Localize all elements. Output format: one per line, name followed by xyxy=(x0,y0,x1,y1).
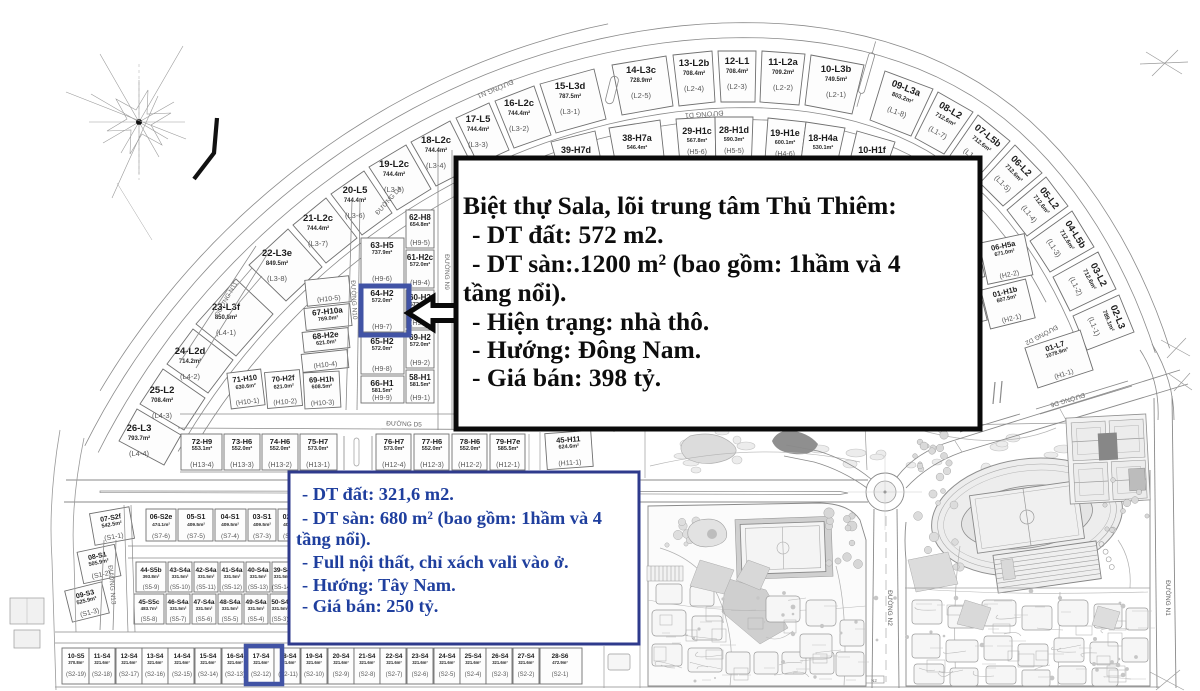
svg-text:331.5m²: 331.5m² xyxy=(198,574,215,579)
svg-text:321.6m²: 321.6m² xyxy=(200,660,216,665)
svg-text:48-S4a: 48-S4a xyxy=(220,599,241,606)
svg-text:(S2-3): (S2-3) xyxy=(492,672,509,678)
svg-text:(S2-9): (S2-9) xyxy=(333,672,350,678)
svg-text:321.6m²: 321.6m² xyxy=(121,660,137,665)
svg-text:(H13-3): (H13-3) xyxy=(230,462,254,469)
svg-text:(L4-4): (L4-4) xyxy=(129,449,150,458)
svg-text:(S2-10): (S2-10) xyxy=(304,672,324,678)
svg-text:744.4m²: 744.4m² xyxy=(344,197,366,204)
svg-text:530.1m²: 530.1m² xyxy=(813,144,834,151)
svg-text:06-S2e: 06-S2e xyxy=(150,514,173,521)
svg-text:(S2-15): (S2-15) xyxy=(172,672,192,678)
svg-text:58-H1: 58-H1 xyxy=(409,373,431,382)
svg-text:849.5m²: 849.5m² xyxy=(266,260,288,267)
svg-text:40-S4a: 40-S4a xyxy=(248,567,269,574)
svg-text:- DT đất: 572 m2.: - DT đất: 572 m2. xyxy=(472,220,664,249)
svg-text:24-L2d: 24-L2d xyxy=(175,346,206,357)
svg-text:19-H1e: 19-H1e xyxy=(770,128,800,138)
svg-text:744.4m²: 744.4m² xyxy=(425,147,447,154)
svg-text:12-S4: 12-S4 xyxy=(121,653,138,660)
svg-text:708.4m²: 708.4m² xyxy=(151,397,173,404)
svg-text:(S5-9): (S5-9) xyxy=(143,585,160,591)
svg-text:744.4m²: 744.4m² xyxy=(307,225,329,232)
svg-text:79-H7e: 79-H7e xyxy=(496,437,521,446)
svg-text:73-H6: 73-H6 xyxy=(232,437,252,446)
svg-text:393.8m²: 393.8m² xyxy=(143,574,160,579)
svg-text:581.5m²: 581.5m² xyxy=(410,381,431,388)
svg-text:552.0m²: 552.0m² xyxy=(460,445,481,452)
svg-text:10-L3b: 10-L3b xyxy=(821,64,852,75)
svg-text:- DT sàn:.1200 m² (bao gồm: 1h: - DT sàn:.1200 m² (bao gồm: 1hầm và 4 xyxy=(472,249,901,278)
svg-text:39-H7d: 39-H7d xyxy=(561,145,591,155)
svg-text:(S5-12): (S5-12) xyxy=(222,585,242,591)
svg-text:567.8m²: 567.8m² xyxy=(687,137,708,144)
svg-text:50-S4: 50-S4 xyxy=(271,599,289,606)
svg-text:- Hiện trạng: nhà thô.: - Hiện trạng: nhà thô. xyxy=(472,307,709,336)
svg-text:17-L5: 17-L5 xyxy=(466,114,492,125)
svg-text:(H12-2): (H12-2) xyxy=(458,462,482,469)
svg-text:708.4m²: 708.4m² xyxy=(726,68,748,75)
svg-text:573.0m²: 573.0m² xyxy=(384,445,405,452)
svg-text:(S5-3): (S5-3) xyxy=(272,617,289,623)
svg-text:(H13-4): (H13-4) xyxy=(190,462,214,469)
svg-text:585.5m²: 585.5m² xyxy=(498,445,519,452)
svg-text:(S2-4): (S2-4) xyxy=(465,672,482,678)
svg-text:(H13-2): (H13-2) xyxy=(268,462,292,469)
svg-text:11-L2a: 11-L2a xyxy=(768,57,798,68)
svg-text:03-S1: 03-S1 xyxy=(253,514,272,521)
svg-text:321.6m²: 321.6m² xyxy=(386,660,402,665)
svg-text:(H9-5): (H9-5) xyxy=(410,240,430,247)
svg-text:(H5-6): (H5-6) xyxy=(687,149,707,156)
svg-text:(S5-5): (S5-5) xyxy=(222,617,239,623)
svg-text:ĐƯỜNG N9: ĐƯỜNG N9 xyxy=(443,254,452,290)
svg-text:04-S1: 04-S1 xyxy=(221,514,240,521)
svg-text:45-S5c: 45-S5c xyxy=(139,599,160,606)
svg-text:331.5m²: 331.5m² xyxy=(172,574,189,579)
svg-text:(L2-4): (L2-4) xyxy=(684,84,705,93)
svg-text:10-S5: 10-S5 xyxy=(68,653,85,660)
svg-text:tầng nổi).: tầng nổi). xyxy=(463,278,566,307)
svg-text:64-H2: 64-H2 xyxy=(370,288,393,298)
svg-text:(S2-7): (S2-7) xyxy=(386,672,403,678)
svg-text:(H9-2): (H9-2) xyxy=(410,360,430,367)
svg-text:321.6m²: 321.6m² xyxy=(465,660,481,665)
svg-text:(L4-2): (L4-2) xyxy=(180,372,201,381)
svg-text:552.0m²: 552.0m² xyxy=(270,445,291,452)
svg-text:62-H8: 62-H8 xyxy=(409,213,431,222)
svg-text:572.0m²: 572.0m² xyxy=(410,261,431,268)
svg-text:321.6m²: 321.6m² xyxy=(492,660,508,665)
svg-text:409.5m²: 409.5m² xyxy=(187,522,205,528)
svg-text:(L3-3): (L3-3) xyxy=(468,140,489,149)
svg-text:(H9-9): (H9-9) xyxy=(372,395,392,402)
svg-text:25-S4: 25-S4 xyxy=(465,653,482,660)
svg-text:(S7-4): (S7-4) xyxy=(221,533,239,540)
svg-text:321.6m²: 321.6m² xyxy=(227,660,243,665)
svg-text:77-H6: 77-H6 xyxy=(422,437,442,446)
svg-text:15-S4: 15-S4 xyxy=(200,653,217,660)
svg-text:(S2-12): (S2-12) xyxy=(251,672,271,678)
svg-text:472.9m²: 472.9m² xyxy=(552,660,568,665)
svg-text:(S5-7): (S5-7) xyxy=(170,617,187,623)
svg-text:(S2-13): (S2-13) xyxy=(225,672,245,678)
svg-text:(S2-16): (S2-16) xyxy=(145,672,165,678)
svg-text:22-S4: 22-S4 xyxy=(386,653,403,660)
svg-text:ĐƯỜNG N1: ĐƯỜNG N1 xyxy=(1164,580,1173,616)
svg-text:(S2-6): (S2-6) xyxy=(412,672,429,678)
svg-text:(L2-1): (L2-1) xyxy=(826,90,847,99)
svg-text:(L3-8): (L3-8) xyxy=(267,274,288,283)
svg-text:590.3m²: 590.3m² xyxy=(724,136,745,143)
svg-text:709.2m²: 709.2m² xyxy=(772,69,794,76)
svg-text:(H9-6): (H9-6) xyxy=(372,276,392,283)
svg-text:744.4m²: 744.4m² xyxy=(383,171,405,178)
svg-text:737.9m²: 737.9m² xyxy=(372,249,393,256)
svg-text:- Giá bán: 250 tỷ.: - Giá bán: 250 tỷ. xyxy=(302,596,438,616)
svg-text:608.5m²: 608.5m² xyxy=(311,382,332,390)
svg-text:20-L5: 20-L5 xyxy=(343,185,369,196)
svg-text:13-S4: 13-S4 xyxy=(147,653,164,660)
svg-text:(S5-13): (S5-13) xyxy=(248,585,268,591)
svg-text:321.6m²: 321.6m² xyxy=(359,660,375,665)
svg-text:21-S4: 21-S4 xyxy=(359,653,376,660)
svg-text:22-L3e: 22-L3e xyxy=(262,248,292,259)
svg-text:572.0m²: 572.0m² xyxy=(372,345,393,352)
svg-text:573.0m²: 573.0m² xyxy=(308,445,329,452)
svg-text:49-S4a: 49-S4a xyxy=(246,599,267,606)
svg-text:787.5m²: 787.5m² xyxy=(559,93,581,100)
svg-text:744.4m²: 744.4m² xyxy=(508,110,530,117)
svg-text:(S2-18): (S2-18) xyxy=(92,672,112,678)
svg-text:793.7m²: 793.7m² xyxy=(128,435,150,442)
svg-text:75-H7: 75-H7 xyxy=(308,437,328,446)
svg-text:- Full nội thất, chỉ xách vali: - Full nội thất, chỉ xách vali vào ở. xyxy=(302,552,569,572)
svg-text:(H12-1): (H12-1) xyxy=(496,462,520,469)
svg-text:331.5m²: 331.5m² xyxy=(250,574,267,579)
svg-text:17-S4: 17-S4 xyxy=(253,653,270,660)
svg-text:74-H6: 74-H6 xyxy=(270,437,290,446)
svg-text:19-S4: 19-S4 xyxy=(306,653,323,660)
svg-text:553.1m²: 553.1m² xyxy=(192,445,213,452)
svg-text:- DT đất: 321,6 m2.: - DT đất: 321,6 m2. xyxy=(302,484,454,504)
svg-text:(H9-4): (H9-4) xyxy=(410,280,430,287)
svg-text:708.4m²: 708.4m² xyxy=(683,70,705,77)
svg-text:321.6m²: 321.6m² xyxy=(412,660,428,665)
svg-text:78-H6: 78-H6 xyxy=(460,437,480,446)
svg-text:28-S6: 28-S6 xyxy=(552,653,569,660)
svg-text:321.6m²: 321.6m² xyxy=(253,660,269,665)
svg-text:14-L3c: 14-L3c xyxy=(626,65,656,76)
svg-text:tầng nổi).: tầng nổi). xyxy=(296,529,371,550)
svg-text:63-H5: 63-H5 xyxy=(370,240,393,250)
svg-text:331.5m²: 331.5m² xyxy=(170,606,187,611)
svg-text:13-L2b: 13-L2b xyxy=(679,58,710,69)
svg-text:18-L2c: 18-L2c xyxy=(421,135,451,146)
svg-text:43-S4a: 43-S4a xyxy=(170,567,191,574)
svg-text:(S2-19): (S2-19) xyxy=(66,672,86,678)
svg-text:15-L3d: 15-L3d xyxy=(555,81,586,92)
svg-text:(H9-7): (H9-7) xyxy=(372,324,392,331)
svg-text:331.5m²: 331.5m² xyxy=(196,606,213,611)
svg-text:409.5m²: 409.5m² xyxy=(221,522,239,528)
svg-text:(S2-2): (S2-2) xyxy=(518,672,535,678)
svg-text:24-S4: 24-S4 xyxy=(439,653,456,660)
svg-text:552.0m²: 552.0m² xyxy=(422,445,443,452)
svg-text:(S7-3): (S7-3) xyxy=(253,533,271,540)
svg-text:72-H9: 72-H9 xyxy=(192,437,212,446)
svg-text:76-H7: 76-H7 xyxy=(384,437,404,446)
svg-text:61-H2c: 61-H2c xyxy=(407,253,434,262)
svg-text:(S2-14): (S2-14) xyxy=(198,672,218,678)
svg-text:321.6m²: 321.6m² xyxy=(439,660,455,665)
svg-text:321.6m²: 321.6m² xyxy=(306,660,322,665)
svg-text:- Giá bán: 398 tỷ.: - Giá bán: 398 tỷ. xyxy=(472,363,661,392)
svg-text:41-S4a: 41-S4a xyxy=(222,567,243,574)
svg-text:25-L2: 25-L2 xyxy=(150,385,175,396)
svg-text:321.6m²: 321.6m² xyxy=(94,660,110,665)
svg-text:44-S5b: 44-S5b xyxy=(140,567,161,574)
svg-text:29-H1c: 29-H1c xyxy=(682,126,712,136)
svg-text:N2: N2 xyxy=(871,678,877,683)
svg-text:(H5-5): (H5-5) xyxy=(724,148,744,155)
svg-text:321.6m²: 321.6m² xyxy=(174,660,190,665)
svg-text:(H9-8): (H9-8) xyxy=(372,366,392,373)
svg-text:(S5-4): (S5-4) xyxy=(248,617,265,623)
svg-text:46-S4a: 46-S4a xyxy=(168,599,189,606)
svg-text:18-H4a: 18-H4a xyxy=(808,133,839,143)
svg-text:Biệt thự Sala, lõi trung tâm T: Biệt thự Sala, lõi trung tâm Thủ Thiêm: xyxy=(463,191,897,220)
svg-text:483.7m²: 483.7m² xyxy=(141,606,158,611)
svg-text:10-H1f: 10-H1f xyxy=(858,145,887,155)
svg-text:(S7-5): (S7-5) xyxy=(187,533,205,540)
svg-text:572.0m²: 572.0m² xyxy=(410,341,431,348)
svg-text:- DT sàn: 680 m² (bao gồm: 1hầ: - DT sàn: 680 m² (bao gồm: 1hầm và 4 xyxy=(302,508,602,529)
svg-text:28-H1d: 28-H1d xyxy=(719,125,749,135)
svg-text:552.0m²: 552.0m² xyxy=(232,445,253,452)
svg-text:331.5m²: 331.5m² xyxy=(248,606,265,611)
svg-text:38-H7a: 38-H7a xyxy=(622,133,653,143)
svg-text:23-S4: 23-S4 xyxy=(412,653,429,660)
svg-text:(H10-3): (H10-3) xyxy=(311,399,335,407)
svg-text:331.5m²: 331.5m² xyxy=(272,606,289,611)
svg-text:(L2-2): (L2-2) xyxy=(773,83,794,92)
svg-text:(L2-5): (L2-5) xyxy=(631,91,652,100)
svg-text:(S5-11): (S5-11) xyxy=(196,585,216,591)
svg-text:624.6m²: 624.6m² xyxy=(558,442,579,450)
svg-text:(S5-8): (S5-8) xyxy=(141,617,158,623)
svg-text:(L4-1): (L4-1) xyxy=(216,328,237,337)
svg-text:370.8m²: 370.8m² xyxy=(68,660,84,665)
svg-text:(S2-8): (S2-8) xyxy=(359,672,376,678)
svg-text:- Hướng: Tây Nam.: - Hướng: Tây Nam. xyxy=(302,575,456,595)
svg-text:- Hướng: Đông Nam.: - Hướng: Đông Nam. xyxy=(472,335,701,364)
svg-text:(L4-3): (L4-3) xyxy=(152,411,173,420)
svg-text:581.5m²: 581.5m² xyxy=(372,387,393,394)
svg-text:42-S4a: 42-S4a xyxy=(196,567,217,574)
svg-text:(S2-5): (S2-5) xyxy=(439,672,456,678)
svg-text:(S2-17): (S2-17) xyxy=(119,672,139,678)
svg-text:19-L2c: 19-L2c xyxy=(379,159,409,170)
svg-text:27-S4: 27-S4 xyxy=(518,653,535,660)
svg-text:14-S4: 14-S4 xyxy=(174,653,191,660)
svg-text:321.6m²: 321.6m² xyxy=(147,660,163,665)
svg-text:600.1m²: 600.1m² xyxy=(775,139,796,146)
svg-text:12-L1: 12-L1 xyxy=(725,56,751,67)
svg-text:728.9m²: 728.9m² xyxy=(630,77,652,84)
svg-text:(S7-6): (S7-6) xyxy=(152,533,170,540)
svg-text:(S5-6): (S5-6) xyxy=(196,617,213,623)
svg-text:(L2-3): (L2-3) xyxy=(727,82,748,91)
svg-text:26-L3: 26-L3 xyxy=(127,423,152,434)
svg-text:ĐƯỜNG N2: ĐƯỜNG N2 xyxy=(886,590,895,626)
svg-text:(S5-10): (S5-10) xyxy=(170,585,190,591)
svg-text:(H9-1): (H9-1) xyxy=(410,395,430,402)
svg-text:16-L2c: 16-L2c xyxy=(504,98,534,109)
svg-text:744.4m²: 744.4m² xyxy=(467,126,489,133)
svg-text:(L3-2): (L3-2) xyxy=(509,124,530,133)
svg-text:47-S4a: 47-S4a xyxy=(194,599,215,606)
svg-text:(H12-3): (H12-3) xyxy=(420,462,444,469)
svg-text:(S2-1): (S2-1) xyxy=(552,672,569,678)
svg-text:(L3-4): (L3-4) xyxy=(426,161,447,170)
svg-text:16-S4: 16-S4 xyxy=(227,653,244,660)
svg-text:20-S4: 20-S4 xyxy=(333,653,350,660)
svg-text:409.5m²: 409.5m² xyxy=(253,522,271,528)
svg-text:21-L2c: 21-L2c xyxy=(303,213,333,224)
svg-text:546.4m²: 546.4m² xyxy=(627,144,648,151)
svg-text:331.5m²: 331.5m² xyxy=(224,574,241,579)
svg-text:474.1m²: 474.1m² xyxy=(152,522,170,528)
svg-text:69-H2: 69-H2 xyxy=(409,333,431,342)
svg-text:321.6m²: 321.6m² xyxy=(518,660,534,665)
svg-text:572.0m²: 572.0m² xyxy=(372,297,393,304)
svg-text:749.5m²: 749.5m² xyxy=(825,76,847,83)
svg-text:(H13-1): (H13-1) xyxy=(306,462,330,469)
svg-text:321.6m²: 321.6m² xyxy=(333,660,349,665)
svg-text:654.8m²: 654.8m² xyxy=(410,221,431,228)
svg-text:331.5m²: 331.5m² xyxy=(222,606,239,611)
svg-text:(L3-1): (L3-1) xyxy=(560,107,581,116)
svg-text:(L3-7): (L3-7) xyxy=(308,239,329,248)
svg-text:66-H1: 66-H1 xyxy=(370,378,393,388)
svg-text:05-S1: 05-S1 xyxy=(187,514,206,521)
svg-text:26-S4: 26-S4 xyxy=(492,653,509,660)
svg-text:11-S4: 11-S4 xyxy=(94,653,111,660)
svg-text:(L3-6): (L3-6) xyxy=(345,211,366,220)
svg-text:(H12-4): (H12-4) xyxy=(382,462,406,469)
